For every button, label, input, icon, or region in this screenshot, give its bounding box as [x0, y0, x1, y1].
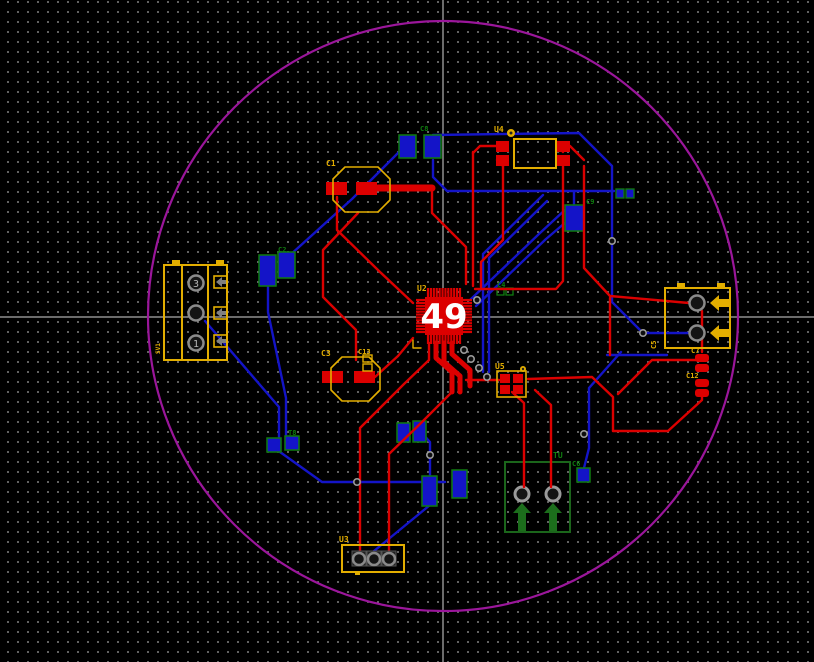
silk-tab: [216, 260, 224, 265]
smd-pad-bottom[interactable]: [452, 470, 467, 498]
smd-pad-top[interactable]: [500, 385, 510, 394]
ref-label-C8[interactable]: C8: [420, 125, 428, 133]
pad-number-1: 1: [193, 339, 199, 350]
ref-label-U5[interactable]: U5: [495, 362, 505, 371]
smd-pad-bottom[interactable]: [267, 438, 281, 452]
smd-pad-top[interactable]: [322, 371, 343, 383]
up-arrow-icon: [513, 503, 531, 531]
smd-pad-top[interactable]: [557, 155, 570, 166]
smd-pad-bottom[interactable]: [278, 252, 295, 278]
silk-corner-mark: [413, 340, 421, 348]
via-hole: [522, 368, 524, 370]
chip-value-49[interactable]: 49: [420, 297, 467, 337]
trace-top-copper[interactable]: [481, 166, 503, 287]
smd-pad-bottom[interactable]: [616, 189, 624, 198]
left-arrow-icon: [710, 295, 730, 311]
trace-bottom-copper[interactable]: [268, 286, 286, 440]
pad-number-3: 3: [193, 279, 199, 290]
trace-bottom-copper[interactable]: [205, 321, 279, 440]
smd-pad-top[interactable]: [496, 141, 509, 152]
trace-top-copper[interactable]: [337, 197, 413, 303]
smd-pad-bottom[interactable]: [626, 189, 634, 198]
smd-pad-top[interactable]: [356, 182, 377, 195]
through-hole-pad[interactable]: [383, 553, 395, 565]
left-arrow-icon: [216, 277, 226, 287]
via[interactable]: [640, 330, 646, 336]
smd-pad-top[interactable]: [326, 182, 347, 195]
ref-label-TU[interactable]: TU: [553, 451, 563, 460]
trace-top-copper[interactable]: [473, 146, 497, 153]
trace-top-copper[interactable]: [432, 188, 466, 284]
through-hole-pad[interactable]: [515, 487, 529, 501]
trace-bottom-copper[interactable]: [470, 209, 566, 300]
smd-pad-bottom[interactable]: [285, 436, 299, 450]
trace-top-copper[interactable]: [535, 390, 551, 487]
trace-top-copper[interactable]: [570, 146, 584, 160]
trace-top-copper[interactable]: [613, 394, 702, 431]
ref-label-U2[interactable]: U2: [417, 284, 427, 293]
via[interactable]: [468, 356, 474, 362]
ref-label-C1[interactable]: C1: [326, 159, 336, 168]
silk-outline-U4[interactable]: [514, 139, 556, 168]
ref-label-U4[interactable]: U4: [494, 125, 504, 134]
ref-label-C5[interactable]: C5: [650, 341, 658, 349]
ref-label-C9[interactable]: C9: [586, 198, 594, 206]
via[interactable]: [581, 431, 587, 437]
via[interactable]: [427, 452, 433, 458]
pcb-canvas[interactable]: U2U4U5U3C1C3C13C7C12C5SV1C8C9C2T8C6C4TU3…: [0, 0, 814, 662]
ref-label-T8[interactable]: T8: [288, 429, 296, 437]
ref-label-U3[interactable]: U3: [339, 535, 349, 544]
trace-bottom-copper[interactable]: [483, 195, 543, 372]
through-hole-pad[interactable]: [353, 553, 365, 565]
ref-label-C13[interactable]: C13: [358, 348, 371, 356]
smd-pad-bottom[interactable]: [399, 135, 416, 158]
ref-label-C4[interactable]: C4: [497, 281, 505, 289]
through-hole-pad[interactable]: [546, 487, 560, 501]
trace-top-copper[interactable]: [528, 377, 613, 431]
smd-pad-top[interactable]: [513, 374, 523, 383]
smd-pad-top[interactable]: [496, 155, 509, 166]
ref-label-SV1[interactable]: SV1: [155, 343, 162, 354]
smd-pad-bottom[interactable]: [259, 255, 276, 286]
trace-top-copper[interactable]: [584, 166, 689, 303]
via[interactable]: [609, 238, 615, 244]
through-hole-pad[interactable]: [690, 326, 705, 341]
smd-pad-top[interactable]: [695, 379, 709, 387]
trace-top-copper[interactable]: [512, 392, 524, 487]
left-arrow-icon: [710, 325, 730, 341]
smd-pad-top[interactable]: [695, 364, 709, 372]
smd-pad-bottom[interactable]: [424, 135, 441, 158]
ref-label-C3[interactable]: C3: [321, 349, 331, 358]
smd-pad-bottom[interactable]: [565, 205, 584, 231]
smd-pad-top[interactable]: [513, 385, 523, 394]
trace-bottom-copper[interactable]: [584, 352, 621, 468]
silk-pad-C13[interactable]: [363, 364, 372, 371]
smd-pad-top[interactable]: [557, 141, 570, 152]
via[interactable]: [354, 479, 360, 485]
smd-pad-top[interactable]: [695, 389, 709, 397]
silk-tab: [717, 283, 725, 288]
silk-tab: [172, 260, 180, 265]
trace-top-copper[interactable]: [618, 360, 696, 394]
smd-pad-bottom[interactable]: [577, 468, 590, 482]
via[interactable]: [461, 347, 467, 353]
silk-pin1-mark: [355, 571, 360, 575]
smd-pad-bottom[interactable]: [422, 476, 437, 506]
ref-label-C6[interactable]: C6: [572, 460, 580, 468]
trace-bottom-copper[interactable]: [433, 160, 614, 191]
up-arrow-icon: [544, 503, 562, 531]
via[interactable]: [476, 365, 482, 371]
silk-tab: [677, 283, 685, 288]
smd-pad-top[interactable]: [354, 371, 375, 383]
via[interactable]: [474, 297, 480, 303]
via[interactable]: [484, 374, 490, 380]
via-hole: [510, 132, 513, 135]
pcb-board-drawing: U2U4U5U3C1C3C13C7C12C5SV1C8C9C2T8C6C4TU3…: [0, 0, 814, 662]
through-hole-pad[interactable]: [189, 306, 204, 321]
through-hole-pad[interactable]: [690, 296, 705, 311]
ref-label-C12[interactable]: C12: [686, 372, 699, 380]
ref-label-C7[interactable]: C7: [691, 347, 699, 355]
through-hole-pad[interactable]: [368, 553, 380, 565]
smd-pad-top[interactable]: [695, 354, 709, 362]
smd-pad-top[interactable]: [500, 374, 510, 383]
trace-bottom-copper[interactable]: [280, 452, 445, 482]
ref-label-C2[interactable]: C2: [278, 246, 286, 254]
